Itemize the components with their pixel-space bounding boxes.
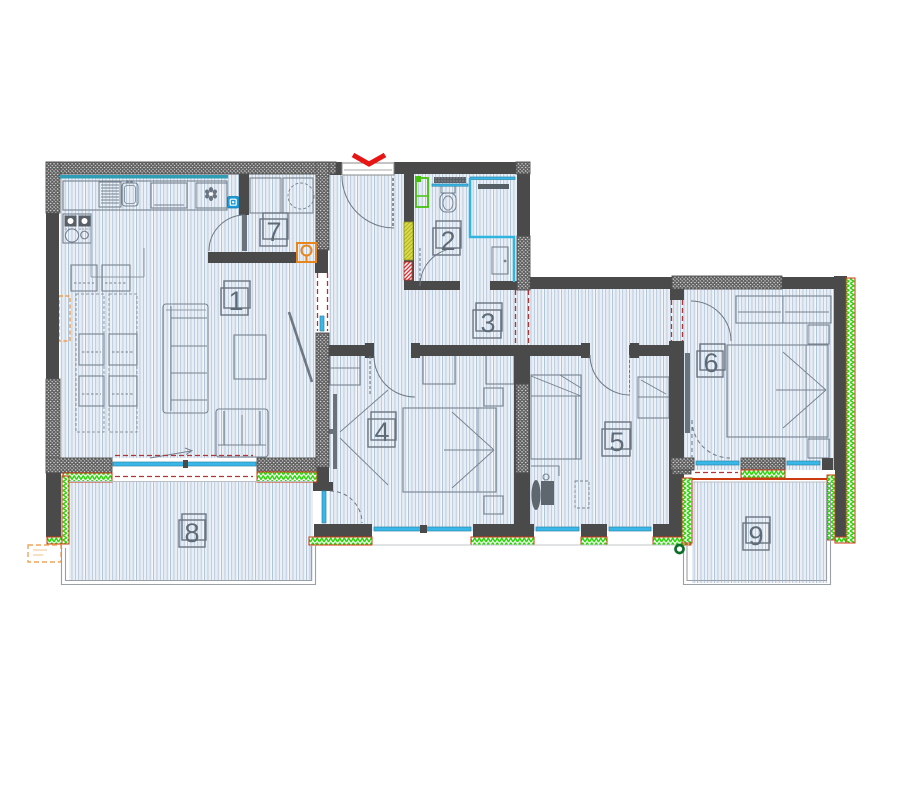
svg-text:2: 2	[440, 226, 455, 256]
svg-text:6: 6	[703, 348, 718, 378]
svg-text:8: 8	[184, 518, 199, 548]
svg-text:4: 4	[374, 417, 389, 447]
svg-text:7: 7	[266, 217, 281, 247]
svg-text:3: 3	[480, 308, 495, 338]
svg-text:1: 1	[228, 286, 243, 316]
svg-text:5: 5	[609, 427, 624, 457]
svg-text:9: 9	[748, 521, 763, 551]
